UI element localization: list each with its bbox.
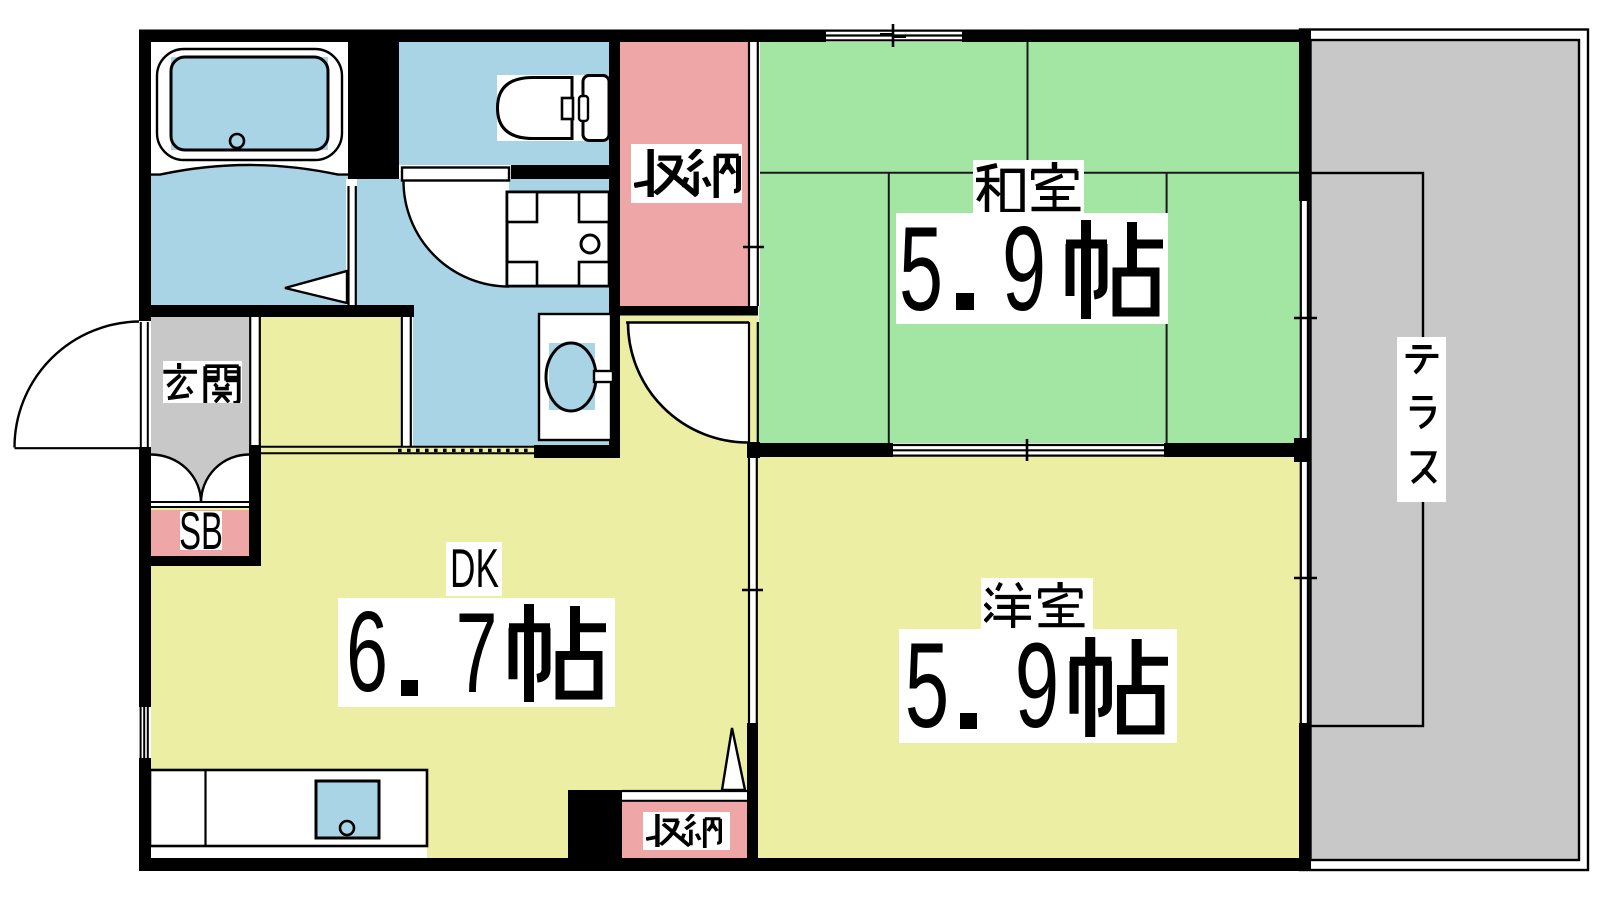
svg-text:9: 9 xyxy=(1002,201,1046,336)
svg-text:5: 5 xyxy=(899,201,943,336)
svg-text:7: 7 xyxy=(456,590,498,716)
svg-text:5: 5 xyxy=(905,617,949,753)
svg-text:6: 6 xyxy=(346,589,388,715)
svg-text:SB: SB xyxy=(179,502,223,561)
svg-text:9: 9 xyxy=(1015,617,1059,753)
